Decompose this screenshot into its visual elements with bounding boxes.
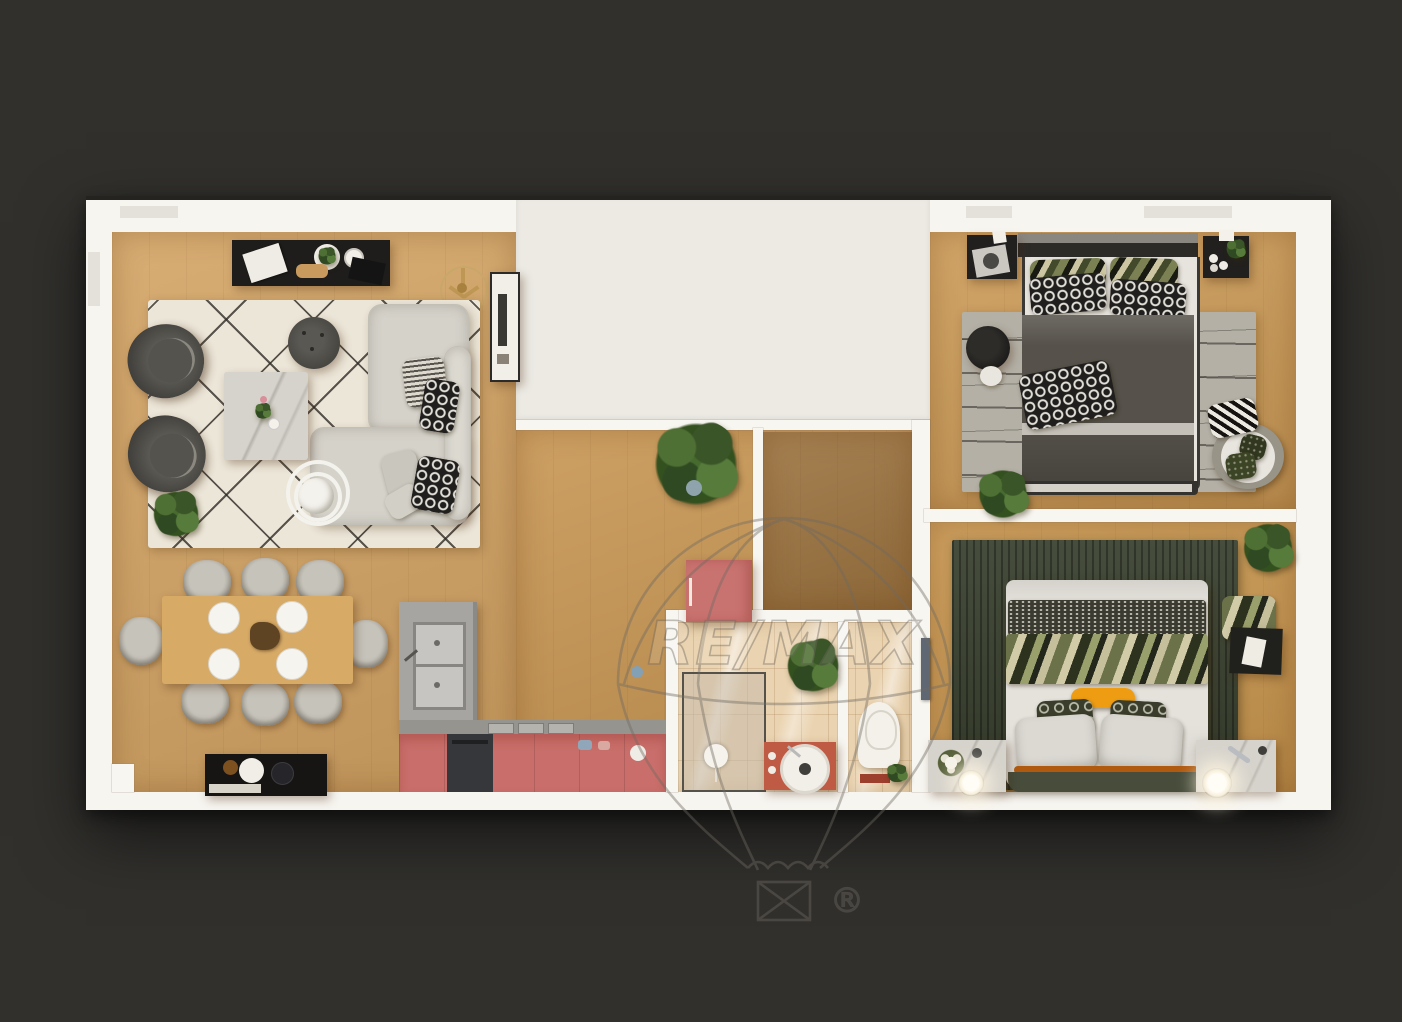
- dining-sideboard: [205, 754, 327, 796]
- wall-hall-left: [753, 428, 763, 610]
- wc-plant: [884, 764, 910, 782]
- table-deco: [260, 396, 267, 403]
- hall-wardrobe-pink: [686, 560, 752, 622]
- pillow-dotted: [1109, 278, 1187, 319]
- shelf-books: [498, 294, 507, 346]
- cooktop-burner: [518, 723, 544, 734]
- magazine: [972, 244, 1010, 277]
- media-console: [232, 240, 390, 286]
- plate: [276, 648, 308, 680]
- table-cup: [268, 418, 280, 430]
- blanket-geometric: [1006, 634, 1208, 684]
- bedroom-1-floor-cushion: [980, 366, 1002, 386]
- dining-table: [162, 596, 353, 684]
- bedroom-1-nightstand-right: [1203, 236, 1249, 278]
- kitchen-sink: [413, 664, 466, 710]
- coffee-table: [224, 372, 308, 460]
- footboard-bench: [1024, 484, 1192, 492]
- papers: [242, 243, 287, 283]
- entry-hall-floor: [763, 432, 912, 610]
- pouf-button: [302, 331, 306, 335]
- wall-bathroom-wc-divider: [838, 622, 848, 792]
- kitchen-cabinets: [399, 734, 666, 792]
- cup: [1210, 264, 1218, 272]
- knob: [972, 748, 982, 758]
- wall-step-bottom-left: [112, 764, 134, 792]
- headboard: [1018, 243, 1198, 257]
- sink-drain: [434, 640, 440, 646]
- wardrobe-handle: [689, 578, 692, 606]
- bathroom-vanity: [764, 742, 836, 790]
- centerpiece: [250, 622, 280, 650]
- basin-drain: [799, 763, 811, 775]
- kitchen-counter: [399, 720, 666, 734]
- corridor-tree: [648, 418, 744, 510]
- shower-stem: [715, 766, 717, 782]
- footboard: [1018, 481, 1198, 495]
- floor-dot-blue: [631, 666, 643, 678]
- window-left-living: [88, 252, 100, 306]
- exterior-cutout: [516, 200, 930, 422]
- tree-pot: [686, 480, 702, 496]
- watermark-registered: ®: [830, 881, 864, 921]
- bedroom-2-door-leaf: [921, 638, 930, 700]
- bedroom-1-bed: [1018, 233, 1198, 495]
- counter-dish-blue: [578, 740, 592, 750]
- bedroom-2-nightstand-left: [928, 740, 1006, 792]
- oven-handle: [452, 740, 488, 744]
- chrome-lamp-arm: [1227, 745, 1251, 764]
- headboard-shelf: [1018, 233, 1198, 243]
- counter-plate: [630, 745, 646, 761]
- dining-chair: [241, 682, 289, 726]
- toilet: [858, 702, 900, 768]
- lamp-glow: [1202, 768, 1232, 798]
- cup: [1219, 261, 1228, 270]
- laptop: [348, 257, 386, 286]
- console-tray: [296, 264, 328, 278]
- tissue-box: [1219, 230, 1234, 241]
- sideboard-kettle: [271, 762, 294, 785]
- ottoman-pouf: [288, 317, 340, 369]
- plate: [208, 602, 240, 634]
- vanity-knob: [768, 766, 776, 774]
- papasan-chair: [1212, 423, 1286, 491]
- wall-bathroom-left: [666, 610, 678, 792]
- counter-dish-pink: [598, 741, 610, 750]
- bedroom-1-nightstand-left: [967, 235, 1017, 279]
- oven: [447, 734, 493, 792]
- ring-side-table: [286, 460, 350, 528]
- dining-chair: [294, 680, 342, 724]
- armchair-cushion: [145, 428, 202, 483]
- fan-hub: [457, 283, 467, 293]
- table-sprig: [254, 402, 272, 420]
- bedroom-2-bed: [1006, 580, 1208, 792]
- window-top-bedroom-1: [1144, 206, 1232, 218]
- window-top-living: [120, 206, 178, 218]
- pouf-button: [310, 347, 314, 351]
- knob: [1258, 746, 1267, 755]
- vanity-basin: [780, 744, 830, 794]
- balloon-scallop: [748, 862, 828, 868]
- shelf-item: [497, 354, 509, 364]
- vanity-knob: [768, 752, 776, 760]
- side-tray-black: [1229, 627, 1283, 675]
- bathroom-plant: [786, 634, 840, 698]
- magazine-photo: [982, 252, 1001, 271]
- papasan-pillow-green: [1224, 451, 1257, 481]
- kitchen-island: [399, 602, 477, 732]
- shower-head: [704, 744, 728, 768]
- toilet-seat: [865, 710, 897, 750]
- sideboard-deco: [223, 760, 238, 775]
- window-top-cutout-right: [966, 206, 1012, 218]
- bookshelf: [490, 272, 520, 382]
- bedroom-1-plant: [972, 470, 1034, 518]
- sideboard-tray: [209, 784, 261, 793]
- cup: [1209, 254, 1218, 263]
- shower: [682, 672, 766, 792]
- floor-plan: RE/MAX ®: [86, 196, 1331, 810]
- bedroom-1-side-table: [966, 326, 1010, 370]
- scene-background: RE/MAX ®: [0, 0, 1402, 1022]
- wall-main-vertical: [912, 420, 930, 792]
- cooktop-burner: [548, 723, 574, 734]
- nightstand-plant: [1225, 238, 1247, 260]
- sideboard-bowl: [239, 758, 264, 783]
- plate: [208, 648, 240, 680]
- balloon-basket: [758, 882, 810, 920]
- lamp-glow: [958, 770, 984, 796]
- cooktop-burner: [488, 723, 514, 734]
- armchair-cushion: [142, 332, 200, 388]
- ring-top: [298, 478, 334, 514]
- dining-chair: [119, 617, 163, 665]
- pouf-button: [320, 333, 324, 337]
- headboard-olive: [1008, 772, 1206, 792]
- card: [992, 230, 1007, 244]
- kitchen-sink: [413, 622, 466, 668]
- console-plant-leaves: [317, 246, 337, 266]
- dining-chair: [181, 680, 229, 724]
- pillow-dotted: [1028, 272, 1107, 316]
- blanket-speckled: [1008, 600, 1206, 636]
- plate: [276, 601, 308, 633]
- sink-drain: [434, 682, 440, 688]
- bedroom-2-nightstand-right: [1196, 740, 1276, 792]
- living-plant: [150, 488, 202, 540]
- bedroom-2-plant: [1238, 522, 1298, 574]
- tray-card: [1241, 636, 1266, 667]
- basket-brace: [758, 882, 810, 920]
